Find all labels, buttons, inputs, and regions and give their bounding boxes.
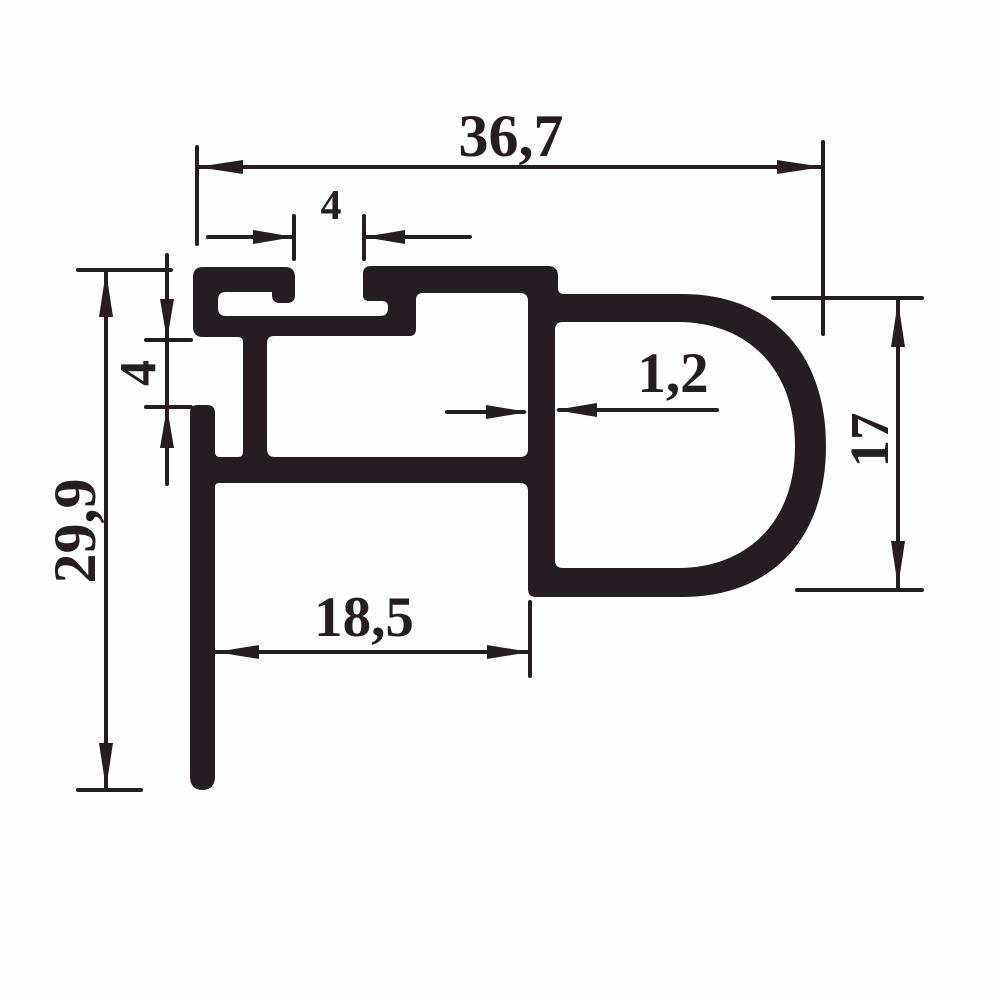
dim-label-left-gap: 4: [110, 360, 167, 386]
arrowhead-up: [160, 407, 174, 448]
dim-label-bulb-height: 17: [839, 413, 900, 468]
arrowhead-left: [197, 160, 243, 174]
arrowhead-left: [555, 403, 597, 417]
arrowhead-up: [99, 271, 113, 317]
arrowhead-left: [253, 230, 294, 244]
arrowhead-up: [891, 301, 905, 347]
profile-outline: [190, 266, 826, 790]
arrowhead-down: [160, 299, 174, 340]
drawing-canvas: 36,7 4 4 29,9: [0, 0, 1000, 1000]
dim-label-total-height: 29,9: [42, 479, 108, 584]
dim-label-wall-thickness: 1,2: [637, 342, 708, 405]
arrowhead-right: [777, 160, 823, 174]
arrowhead-left: [216, 645, 259, 659]
arrowhead-right: [486, 405, 528, 419]
arrowhead-down: [99, 743, 113, 789]
dim-left-gap: 4: [110, 255, 191, 484]
profile-technical-drawing: 36,7 4 4 29,9: [0, 0, 1000, 1000]
dim-top-slot: 4: [208, 183, 470, 259]
dim-total-height: 29,9: [42, 270, 171, 790]
arrowhead-right: [487, 645, 530, 659]
arrowhead-right: [364, 230, 405, 244]
dim-label-total-width: 36,7: [459, 103, 564, 169]
arrowhead-down: [891, 541, 905, 587]
dim-wall-thickness: 1,2: [447, 342, 717, 419]
dim-label-top-slot: 4: [321, 183, 342, 229]
dim-leg-to-wall: 18,5: [216, 586, 530, 676]
dim-label-leg-to-wall: 18,5: [314, 586, 414, 649]
